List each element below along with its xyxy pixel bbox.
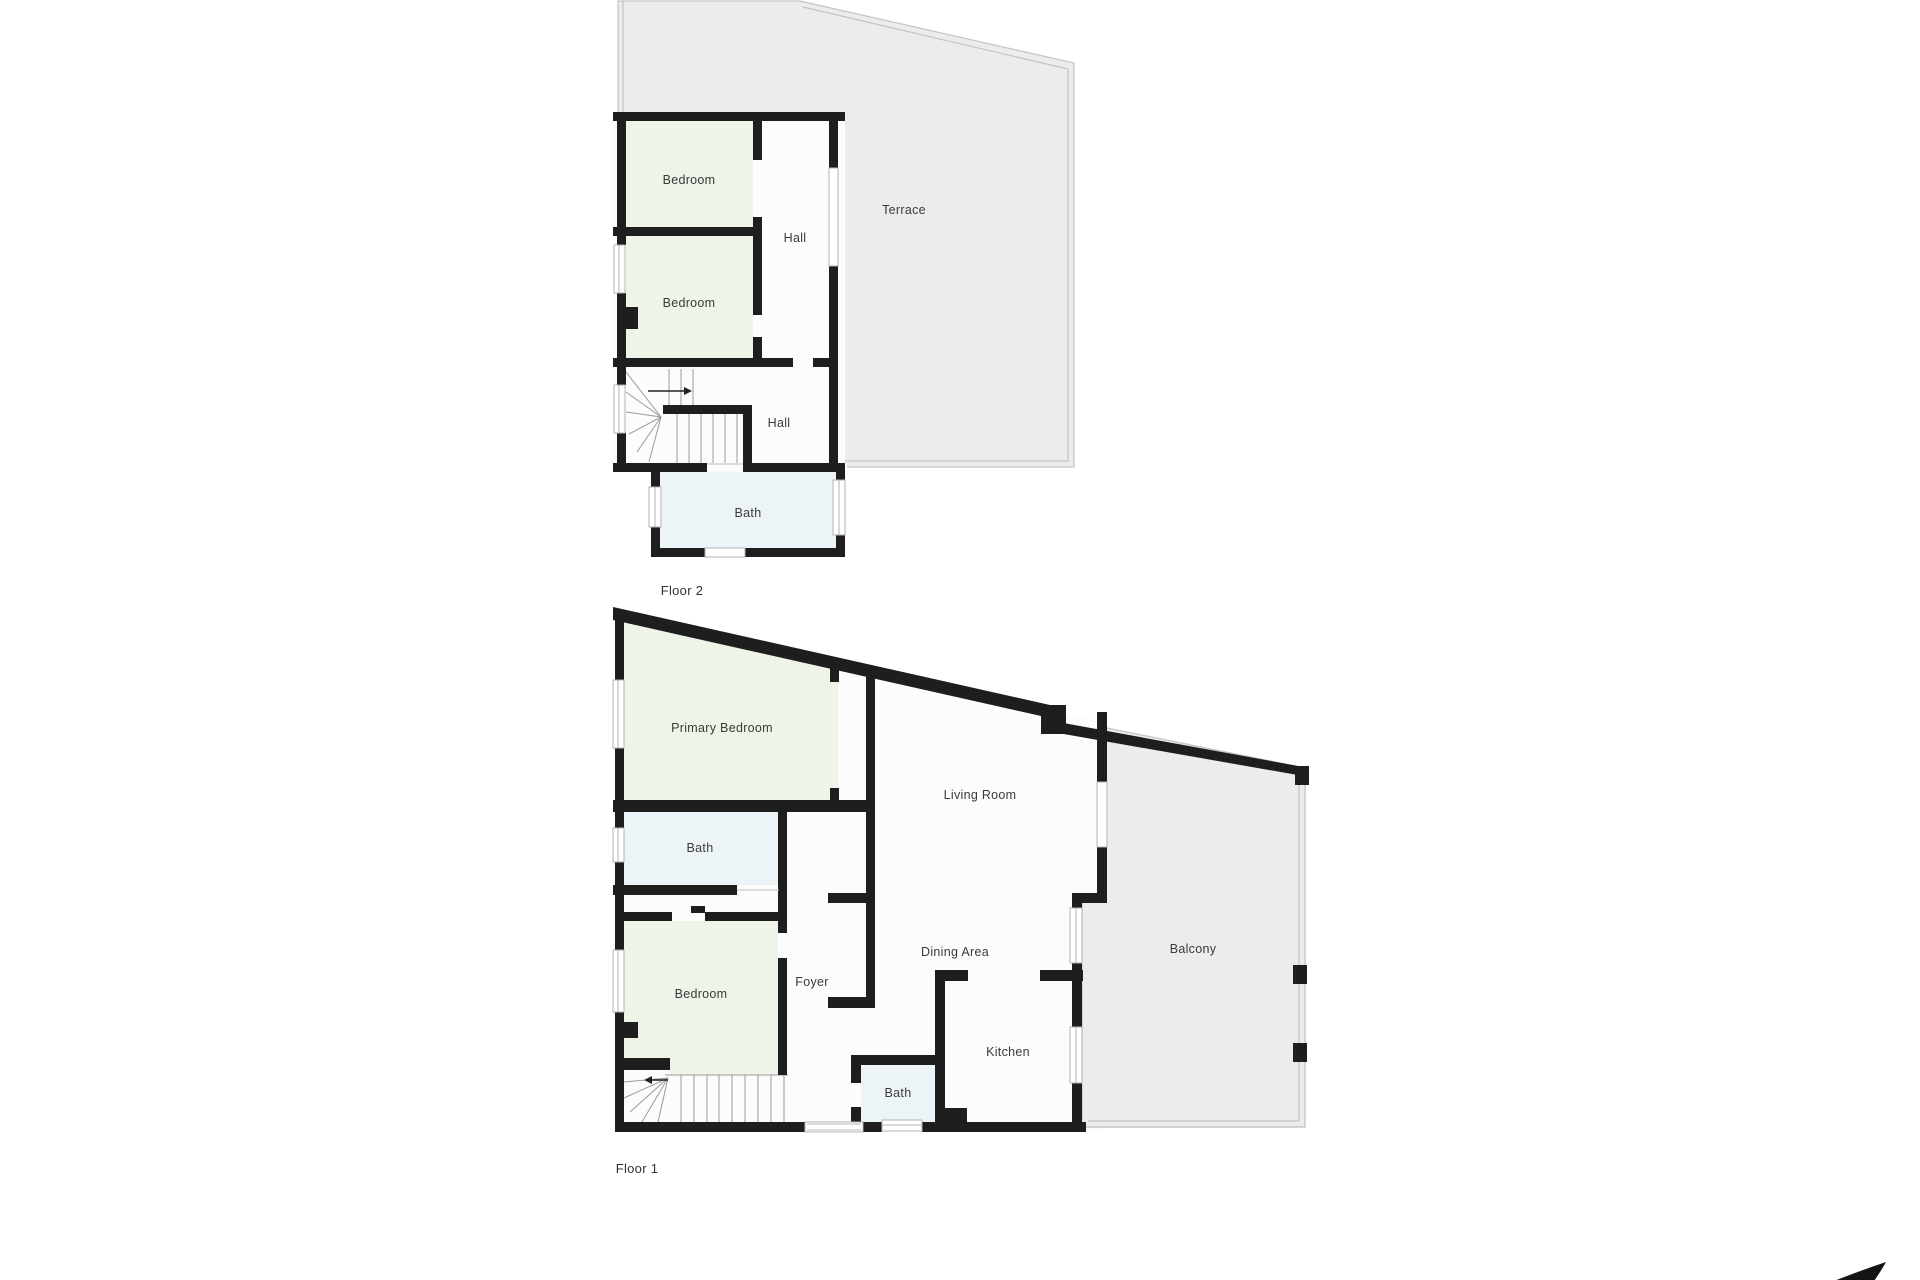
room-label-bath-main: Bath — [687, 841, 714, 855]
room-label-foyer: Foyer — [795, 975, 828, 989]
floor1-plan: Primary Bedroom Bath Bedroom Foyer Livin… — [613, 607, 1309, 1176]
room-label-terrace: Terrace — [882, 203, 926, 217]
balcony-area — [1082, 727, 1305, 1127]
balcony-door-opening — [1097, 782, 1107, 847]
room-label-hall-upper: Hall — [784, 231, 807, 245]
room-label-bedroom: Bedroom — [675, 987, 728, 1001]
balcony-post — [1295, 766, 1309, 785]
room-label-bath-f2: Bath — [735, 506, 762, 520]
north-arrow-icon — [1834, 1262, 1886, 1280]
room-label-living-room: Living Room — [944, 788, 1017, 802]
primary-bedroom-area — [624, 622, 838, 800]
room-label-dining-area: Dining Area — [921, 945, 989, 959]
floorplan-page: Bedroom Bedroom Hall Hall Bath Terrace F… — [0, 0, 1920, 1280]
floorplan-canvas: Bedroom Bedroom Hall Hall Bath Terrace F… — [0, 0, 1920, 1280]
floor2-interior — [613, 112, 847, 557]
balcony-post — [1293, 965, 1307, 984]
balcony-post — [1293, 1043, 1307, 1062]
room-label-bath-small: Bath — [885, 1086, 912, 1100]
room-label-primary-bedroom: Primary Bedroom — [671, 721, 773, 735]
floor2-title: Floor 2 — [661, 583, 704, 598]
room-label-balcony: Balcony — [1170, 942, 1217, 956]
room-label-bedroom-top: Bedroom — [663, 173, 716, 187]
terrace-door-opening — [829, 168, 838, 266]
room-label-bedroom-bottom: Bedroom — [663, 296, 716, 310]
room-label-kitchen: Kitchen — [986, 1045, 1030, 1059]
bath-door-opening — [705, 548, 745, 557]
floor1-title: Floor 1 — [616, 1161, 659, 1176]
room-label-hall-lower: Hall — [768, 416, 791, 430]
floor2-plan: Bedroom Bedroom Hall Hall Bath Terrace F… — [613, 1, 1074, 598]
